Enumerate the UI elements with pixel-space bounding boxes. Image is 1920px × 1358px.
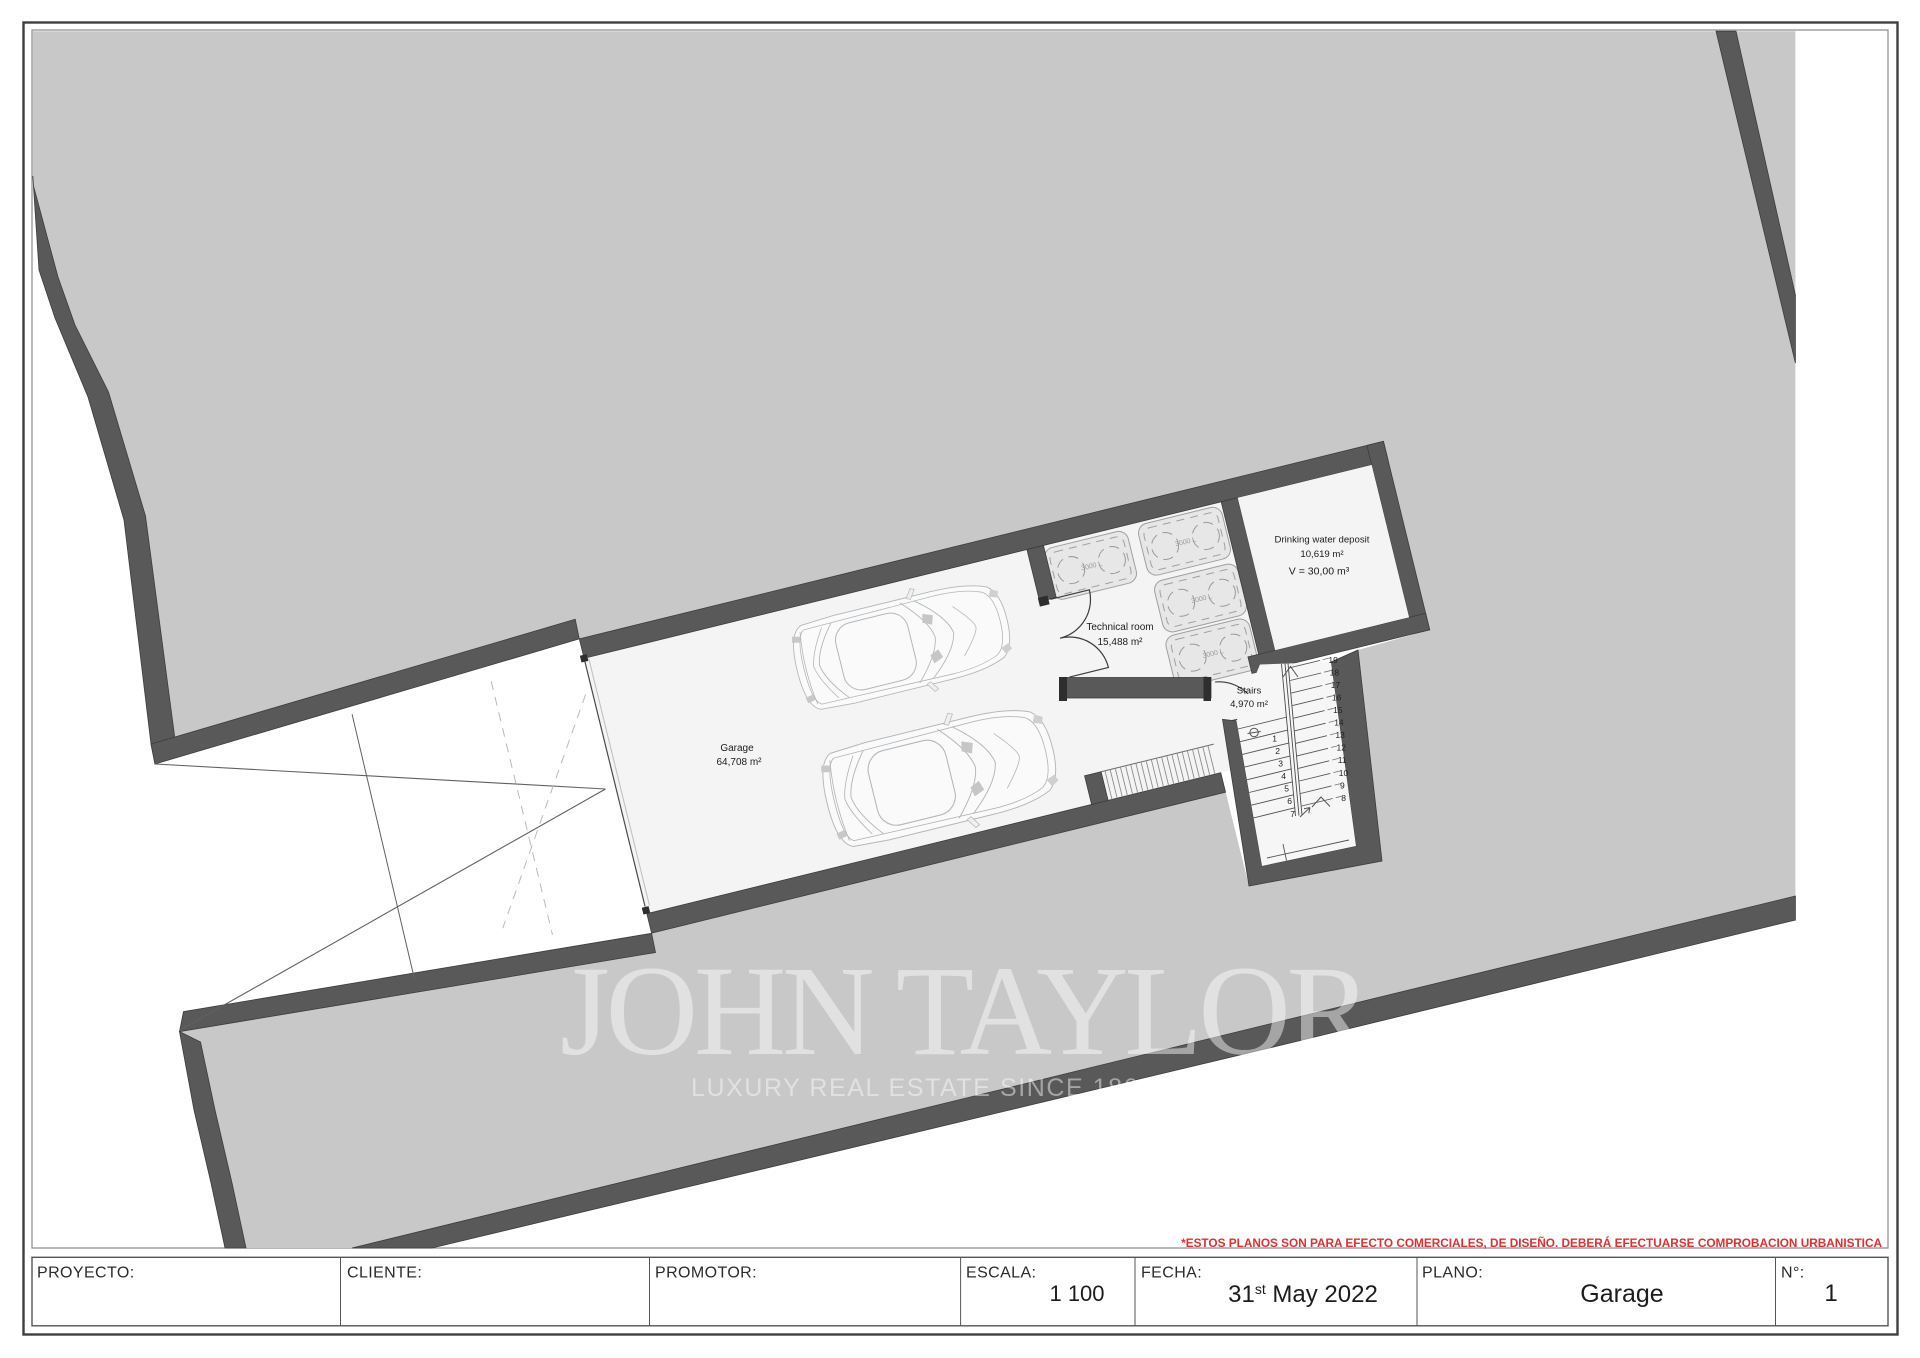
svg-text:18: 18 — [1330, 667, 1340, 677]
svg-text:Technical room: Technical room — [1086, 622, 1153, 633]
svg-text:Garage: Garage — [720, 743, 754, 754]
svg-text:15,488 m²: 15,488 m² — [1097, 637, 1143, 648]
svg-text:PROYECTO:: PROYECTO: — [37, 1265, 135, 1282]
svg-text:Stairs: Stairs — [1237, 686, 1262, 697]
svg-text:JOHN TAYLOR: JOHN TAYLOR — [560, 940, 1380, 1082]
svg-text:10: 10 — [1339, 768, 1349, 778]
svg-text:1: 1 — [1272, 734, 1277, 744]
svg-text:LUXURY REAL ESTATE SINCE 1864: LUXURY REAL ESTATE SINCE 1864 — [691, 1074, 1153, 1102]
svg-text:4: 4 — [1281, 771, 1286, 781]
svg-text:*ESTOS PLANOS SON PARA EFECTO: *ESTOS PLANOS SON PARA EFECTO COMERCIALE… — [1181, 1236, 1882, 1250]
svg-text:3: 3 — [1278, 759, 1283, 769]
svg-text:Drinking water deposit: Drinking water deposit — [1275, 535, 1370, 546]
svg-text:9: 9 — [1340, 780, 1345, 790]
svg-text:14: 14 — [1334, 718, 1344, 728]
svg-text:FECHA:: FECHA: — [1141, 1265, 1202, 1282]
svg-text:12: 12 — [1337, 743, 1347, 753]
svg-text:13: 13 — [1335, 730, 1345, 740]
svg-text:1 100: 1 100 — [1049, 1281, 1104, 1306]
svg-text:11: 11 — [1338, 755, 1347, 765]
svg-text:17: 17 — [1331, 680, 1341, 690]
svg-text:15: 15 — [1333, 705, 1343, 715]
svg-text:7: 7 — [1290, 809, 1295, 819]
svg-text:PROMOTOR:: PROMOTOR: — [655, 1265, 757, 1282]
svg-text:2: 2 — [1275, 746, 1280, 756]
svg-text:ESCALA:: ESCALA: — [966, 1265, 1036, 1282]
svg-text:N°:: N°: — [1781, 1265, 1805, 1282]
svg-text:PLANO:: PLANO: — [1422, 1265, 1483, 1282]
svg-text:CLIENTE:: CLIENTE: — [347, 1265, 422, 1282]
svg-text:10,619 m²: 10,619 m² — [1300, 549, 1344, 560]
svg-text:64,708 m²: 64,708 m² — [716, 757, 762, 768]
svg-text:31st May 2022: 31st May 2022 — [1228, 1281, 1378, 1308]
svg-text:V = 30,00 m³: V = 30,00 m³ — [1289, 566, 1350, 578]
svg-text:16: 16 — [1332, 693, 1342, 703]
svg-text:1: 1 — [1824, 1280, 1837, 1307]
svg-text:8: 8 — [1341, 793, 1346, 803]
svg-text:Garage: Garage — [1580, 1280, 1663, 1308]
svg-text:4,970 m²: 4,970 m² — [1230, 699, 1269, 710]
svg-text:6: 6 — [1287, 796, 1292, 806]
svg-text:5: 5 — [1284, 784, 1289, 794]
svg-text:19: 19 — [1328, 655, 1338, 665]
